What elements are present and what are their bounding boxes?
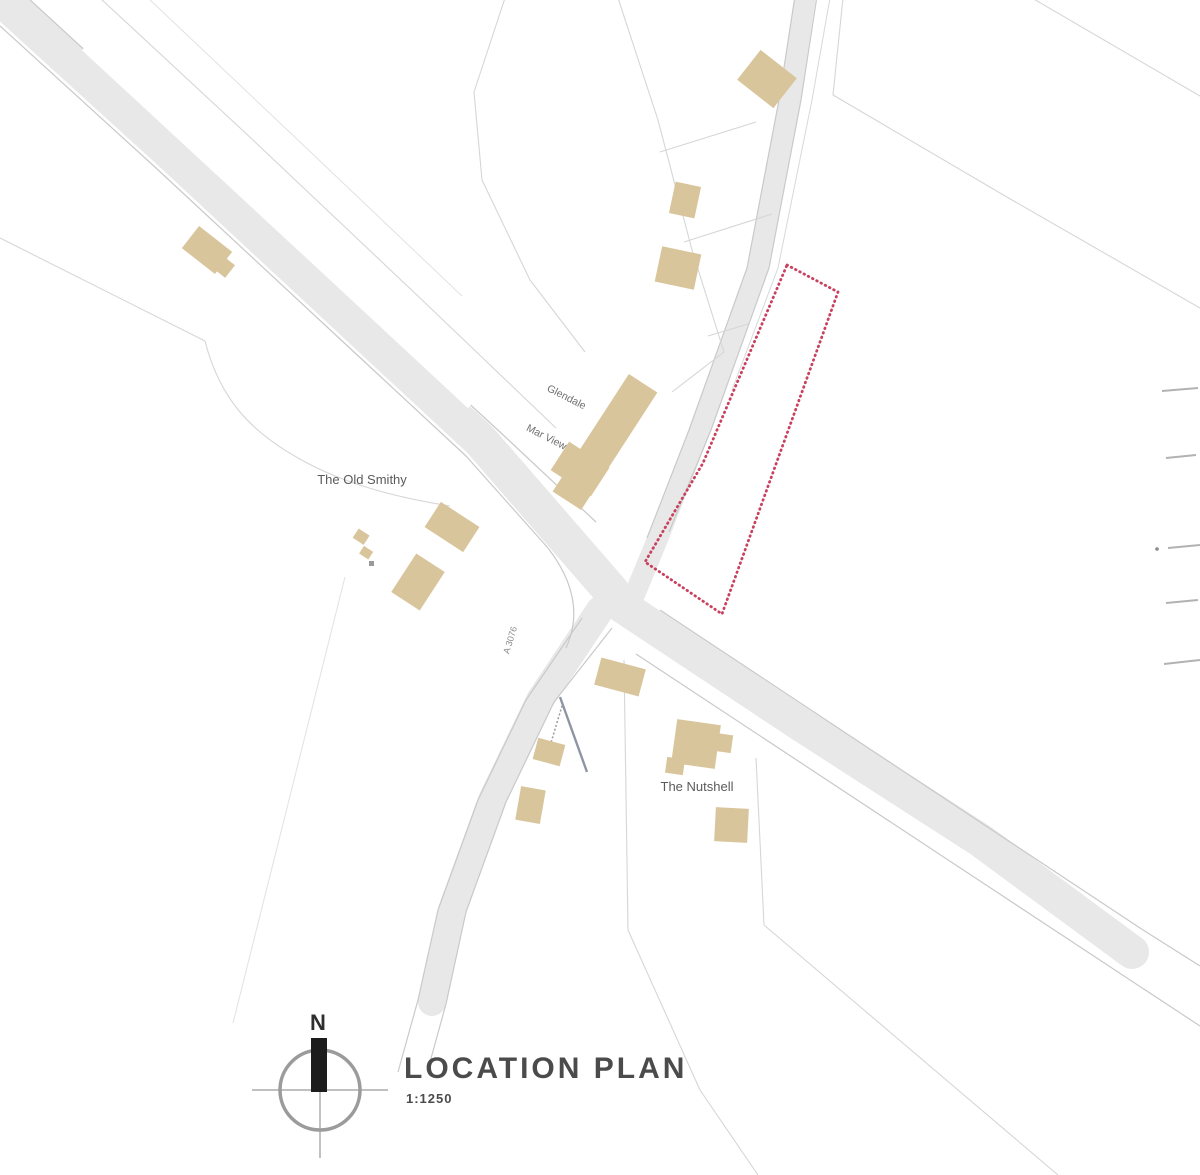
edge-mark-dot — [1155, 547, 1159, 551]
edge-mark-line — [1162, 388, 1198, 391]
location-plan-page: The Old Smithy Glendale Mar View The Nut… — [0, 0, 1200, 1175]
parcel-line — [100, 0, 556, 428]
plan-scale: 1:1250 — [406, 1091, 452, 1106]
road-casing — [0, 26, 548, 548]
mar-view-label: Mar View — [524, 422, 569, 453]
edge-mark-line — [1168, 545, 1200, 548]
road-casing — [430, 628, 612, 1062]
glendale-label: Glendale — [545, 382, 588, 412]
parcel-line — [0, 238, 205, 341]
tiny-map-text-mark — [550, 706, 562, 746]
title-block: LOCATION PLAN 1:1250 — [404, 1052, 687, 1106]
nutshell-label: The Nutshell — [661, 779, 734, 794]
building-footprint — [665, 757, 685, 775]
parcel-line — [660, 122, 756, 152]
building-footprint — [359, 546, 373, 560]
roads-layer — [0, 0, 1200, 1072]
building-footprint — [594, 658, 646, 697]
road-designation-label: A 3076 — [501, 625, 519, 655]
track-line — [560, 697, 587, 772]
compass-rose: N — [252, 1010, 388, 1158]
building-footprint — [713, 733, 733, 753]
edge-marks — [1155, 388, 1200, 664]
edge-mark-line — [1166, 600, 1198, 603]
parcel-line — [474, 0, 585, 352]
small-structure — [369, 561, 374, 566]
compass-north-label: N — [310, 1010, 326, 1035]
building-footprint — [655, 246, 702, 290]
building-footprint — [669, 182, 701, 219]
building-footprint — [714, 807, 749, 843]
plan-title: LOCATION PLAN — [404, 1052, 687, 1085]
parcel-line — [833, 0, 1200, 308]
road-south — [432, 610, 600, 1002]
parcel-line — [1032, 0, 1200, 96]
parcel-line — [756, 758, 1058, 1175]
compass-needle — [311, 1038, 327, 1092]
building-footprint — [391, 553, 445, 610]
old-smithy-label: The Old Smithy — [317, 472, 407, 487]
location-plan-map: The Old Smithy Glendale Mar View The Nut… — [0, 0, 1200, 1175]
parcel-line — [233, 577, 345, 1023]
building-footprint — [515, 786, 546, 824]
building-footprint — [533, 738, 566, 766]
building-footprint — [425, 502, 480, 552]
edge-mark-line — [1166, 455, 1196, 458]
road-stripe — [84, 48, 470, 406]
edge-mark-line — [1164, 660, 1200, 664]
parcel-line — [618, 0, 724, 392]
road-northwest — [14, 10, 612, 592]
building-footprint — [353, 529, 370, 545]
